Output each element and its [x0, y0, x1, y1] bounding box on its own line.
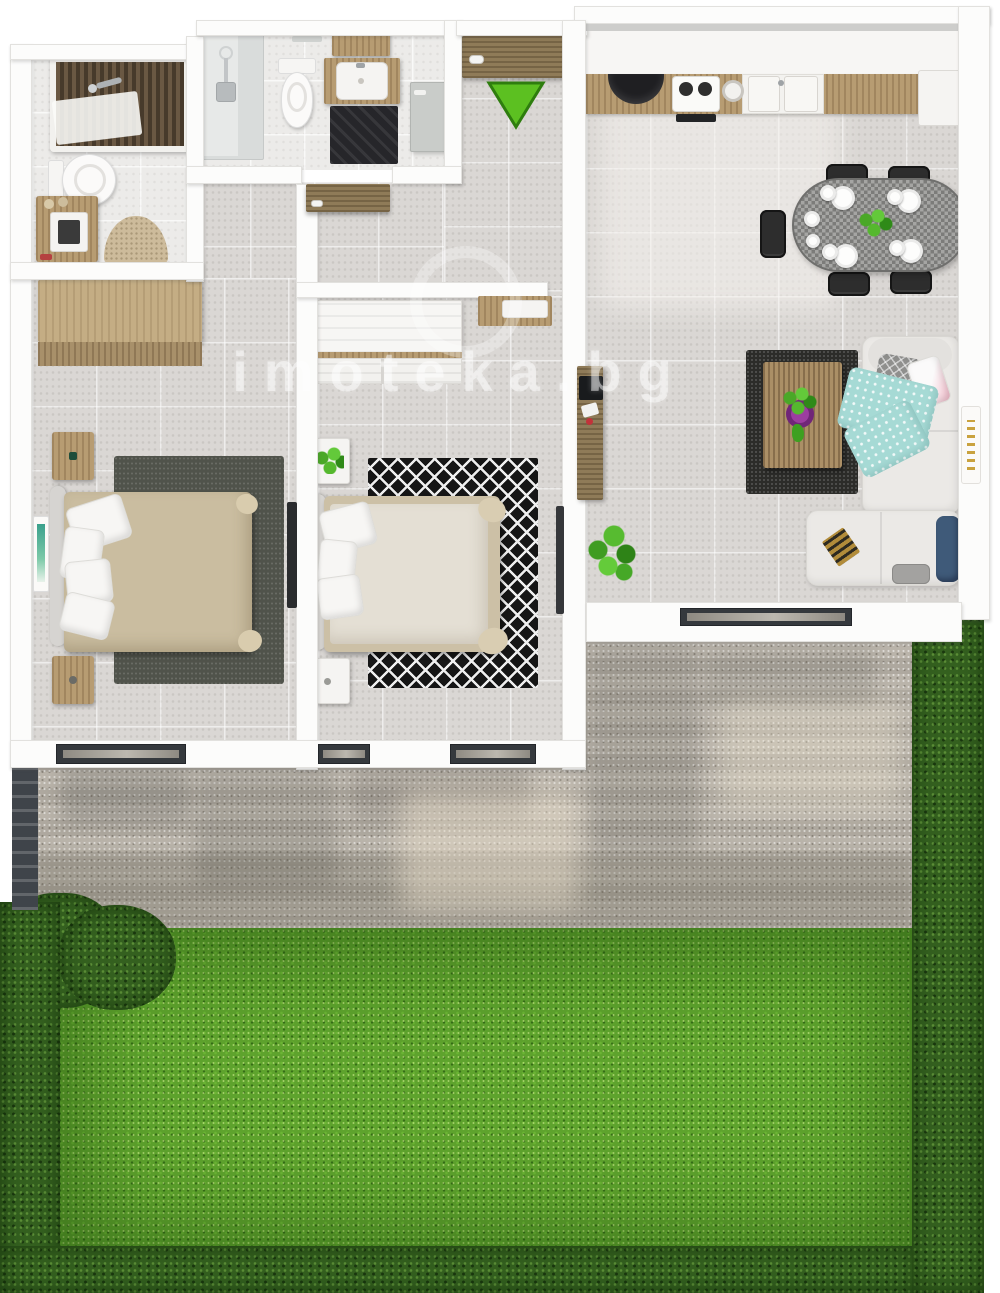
bath1-sink-basin [58, 220, 80, 244]
toilet1-seat [74, 164, 106, 196]
bath1-soap-2 [58, 197, 68, 207]
chaise-small-pillow [892, 564, 930, 584]
bedroom1-nightstand-top-knob [69, 452, 77, 460]
shower-mixer [216, 82, 236, 102]
bedroom2-sliding-door-left-glass [323, 750, 365, 758]
living-wall-art-gold-detail [967, 420, 975, 470]
plate [887, 189, 903, 205]
hallway-door [306, 184, 390, 212]
round-sink [722, 80, 744, 102]
wall-outer-right [958, 6, 990, 620]
bath1-soap-1 [44, 199, 54, 209]
cooktop [672, 76, 720, 112]
basin-right [784, 76, 818, 112]
terrace-shadow-5 [705, 648, 875, 708]
plate [889, 240, 905, 256]
plate [834, 244, 858, 268]
wall-outer-left [10, 44, 32, 768]
garden-lawn [56, 928, 914, 1258]
terrace-shadow-4 [588, 642, 698, 852]
hedge-left [0, 902, 60, 1293]
hedge-right [912, 616, 984, 1293]
bedroom2-wall-tv [556, 506, 564, 614]
living-sliding-door [680, 608, 852, 626]
bedroom2-nightstand-knob [324, 678, 331, 685]
shower-pipe [224, 58, 228, 82]
bath1-red-towel [40, 254, 52, 260]
basin-faucet [778, 80, 784, 86]
sofa-seam-2 [880, 512, 882, 584]
table-centerpiece-plant [856, 208, 896, 240]
dining-chair-left [760, 210, 786, 258]
bedroom2-sliding-door-left [318, 744, 370, 764]
garden-fence-posts [12, 760, 38, 910]
entrance-arrow-icon [486, 80, 546, 130]
bedroom1-wall-art-detail [37, 524, 45, 582]
toilet2-seat [287, 82, 307, 112]
coffee-table-leaf [792, 424, 804, 442]
floor-plan-canvas: imoteka.bg [0, 0, 1000, 1293]
entrance-door-handle [469, 55, 484, 64]
bedroom1-wall-tv [287, 502, 297, 608]
living-potted-plant [584, 522, 640, 584]
bathtub-faucet-knob [88, 84, 97, 93]
console-deco-red [586, 418, 593, 425]
kitchen-cabinet-right [918, 70, 962, 126]
bedroom1-sliding-door [56, 744, 186, 764]
plate [806, 234, 820, 248]
bath2-dark-rug [330, 106, 398, 164]
bedroom2-sliding-door-right-glass [456, 750, 530, 758]
wall-top-kitchen-edge [574, 24, 990, 31]
bedroom1-wardrobe-top [38, 280, 202, 342]
wall-bath2-bottom-left [186, 166, 302, 184]
bedroom1-sliding-door-glass [63, 750, 179, 758]
bath2-vent-strip [292, 36, 322, 42]
dining-chair-bottom-1 [828, 272, 870, 296]
dining-chair-bottom-2 [890, 270, 932, 294]
bedroom2-pillow-3 [315, 573, 364, 621]
bath2-faucet [356, 63, 365, 68]
wall-entry-left [444, 20, 462, 184]
cooktop-burner-right [698, 82, 712, 96]
wall-top-kitchen [574, 6, 990, 24]
bath2-drain [358, 78, 364, 84]
wall-bath1-right [186, 36, 204, 282]
navy-cushion [936, 516, 960, 582]
bath2-door-handle [414, 90, 426, 95]
cooktop-burner-left [679, 82, 693, 96]
wall-bath1-bottom [10, 262, 204, 280]
hedge-bush-2 [58, 905, 176, 1010]
kitchen-mat [676, 114, 716, 122]
bedroom1-nightstand-bottom-knob [69, 676, 77, 684]
bedroom2-sliding-door-right [450, 744, 536, 764]
wall-top-bath1 [10, 44, 196, 60]
hallway-door-handle [311, 200, 323, 207]
wall-bath2-bottom-right [392, 166, 462, 184]
wall-bedroom-divider [296, 184, 318, 770]
terrace-light-patch-2 [720, 700, 900, 810]
terrace-shadow-1 [60, 768, 190, 824]
hedge-bottom [0, 1246, 918, 1293]
plate [822, 244, 838, 260]
plate [804, 211, 820, 227]
watermark-text: imoteka.bg [80, 336, 840, 408]
plate [820, 185, 836, 201]
basin-left [748, 76, 780, 112]
living-sliding-door-glass [687, 613, 845, 621]
wall-top-middle [196, 20, 462, 36]
terrace-light-patch-1 [400, 790, 580, 910]
